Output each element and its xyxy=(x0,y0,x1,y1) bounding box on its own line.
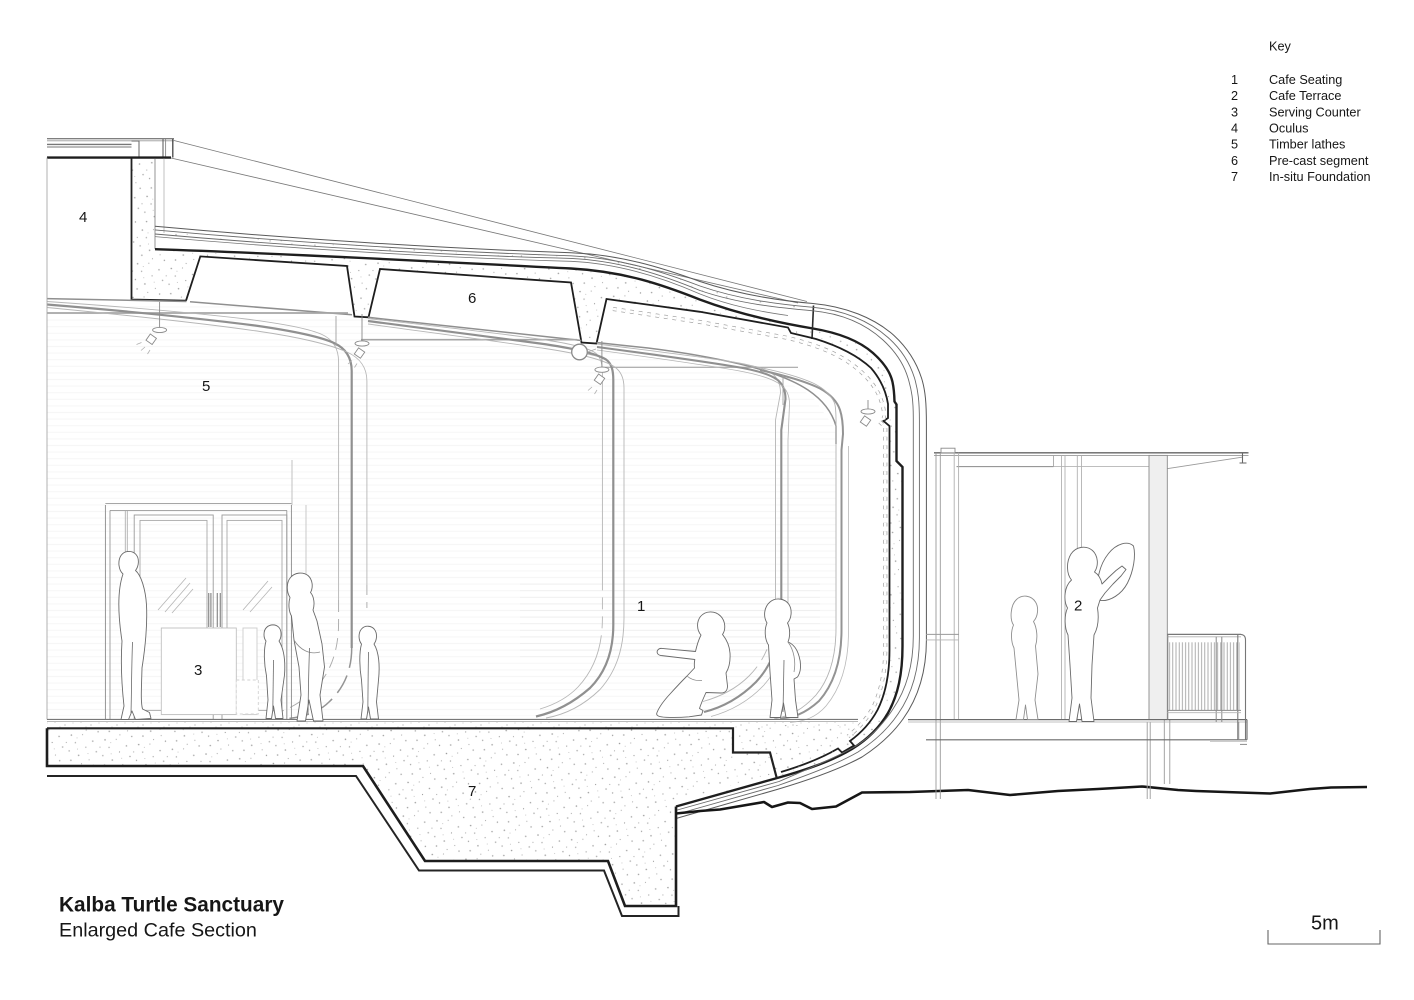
svg-text:Pre-cast segment: Pre-cast segment xyxy=(1269,154,1369,168)
svg-text:6: 6 xyxy=(468,290,476,307)
svg-text:2: 2 xyxy=(1074,598,1082,615)
svg-text:2: 2 xyxy=(1231,89,1238,103)
svg-text:5: 5 xyxy=(1231,138,1238,152)
svg-text:Serving Counter: Serving Counter xyxy=(1269,105,1361,119)
svg-text:Kalba Turtle Sanctuary: Kalba Turtle Sanctuary xyxy=(59,894,284,917)
svg-text:5: 5 xyxy=(202,378,210,395)
svg-text:7: 7 xyxy=(468,783,476,800)
svg-text:Cafe Seating: Cafe Seating xyxy=(1269,73,1342,87)
svg-text:Timber lathes: Timber lathes xyxy=(1269,138,1345,152)
svg-text:In-situ Foundation: In-situ Foundation xyxy=(1269,170,1371,184)
svg-text:Enlarged Cafe Section: Enlarged Cafe Section xyxy=(59,920,257,942)
svg-text:1: 1 xyxy=(1231,73,1238,87)
svg-text:4: 4 xyxy=(1231,122,1238,136)
svg-text:3: 3 xyxy=(1231,105,1238,119)
svg-text:3: 3 xyxy=(194,662,202,679)
svg-text:Key: Key xyxy=(1269,40,1292,54)
svg-text:1: 1 xyxy=(637,598,645,615)
svg-text:7: 7 xyxy=(1231,170,1238,184)
svg-text:Cafe Terrace: Cafe Terrace xyxy=(1269,89,1341,103)
svg-text:Oculus: Oculus xyxy=(1269,122,1309,136)
svg-text:5m: 5m xyxy=(1311,913,1339,935)
svg-text:6: 6 xyxy=(1231,154,1238,168)
svg-text:4: 4 xyxy=(79,209,87,226)
